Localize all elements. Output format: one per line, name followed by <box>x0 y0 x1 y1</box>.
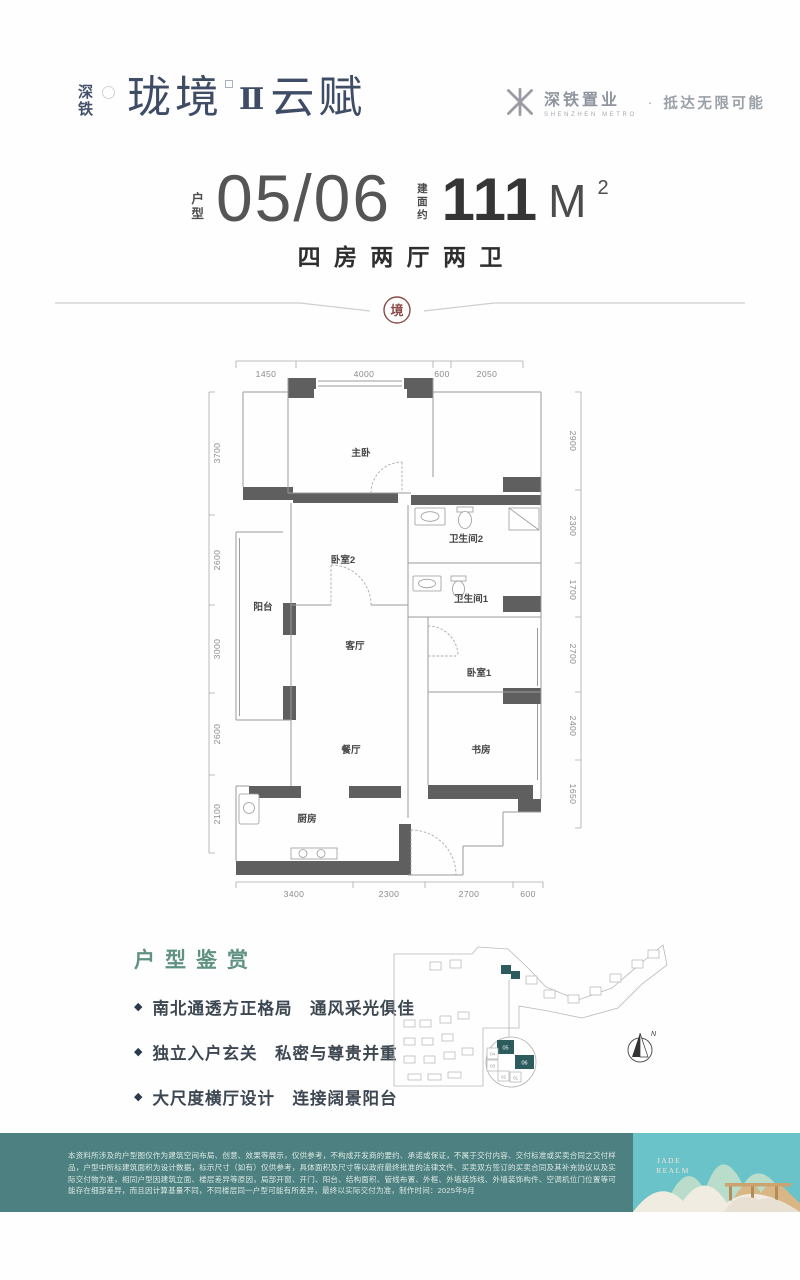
footer-band: 本资料所涉及的户型图仅作为建筑空间布局、创意、效果等展示，仅供参考，不构成开发商… <box>0 1133 800 1212</box>
divider-line-left <box>55 303 370 311</box>
seal-character: 境 <box>390 303 403 318</box>
wall-segments <box>236 378 541 875</box>
art-title-line1: JADE <box>657 1156 681 1165</box>
unit-type-label: 户 型 <box>191 192 204 222</box>
project-logo: 深 铁 珑境 Ⅱ 云赋 <box>78 74 366 122</box>
feature-text: 大尺度横厅设计 连接阔景阳台 <box>152 1085 397 1109</box>
room-label-kitchen: 厨房 <box>297 813 317 825</box>
dim-label: 2300 <box>568 516 578 537</box>
dim-label: 2100 <box>212 804 222 825</box>
developer-name-block: 深铁置业 SHENZHEN METRO <box>544 86 637 118</box>
compass-icon: N <box>628 1031 657 1062</box>
unit-number: 05/06 <box>216 166 391 230</box>
developer-name: 深铁置业 <box>544 86 637 110</box>
compass-north-label: N <box>651 1031 657 1038</box>
mountain-art-icon: JADE REALM <box>633 1133 800 1212</box>
area-number: 111 <box>442 170 539 230</box>
dim-label: 1650 <box>568 784 578 805</box>
toilet-icon <box>451 576 466 581</box>
dim-label: 2900 <box>568 431 578 452</box>
room-label-bedroom1: 卧室1 <box>467 667 492 679</box>
decorative-divider: 境 <box>0 294 800 334</box>
dim-label: 3400 <box>284 889 305 899</box>
separator-dot: · <box>648 94 653 110</box>
developer-slogan: 抵达无限可能 <box>663 92 765 113</box>
unit-label-05: 05 <box>502 1046 508 1052</box>
fixtures <box>239 507 539 859</box>
floor-plan: 1450 4000 600 2050 3400 2300 2700 600 37… <box>203 356 603 904</box>
feature-text: 独立入户玄关 私密与尊贵并重 <box>152 1040 397 1064</box>
dimension-labels: 1450 4000 600 2050 3400 2300 2700 600 37… <box>212 369 578 899</box>
area-label-char: 约 <box>417 209 428 222</box>
layout-subtitle: 四房两厅两卫 <box>0 238 800 272</box>
logo-brand-stack: 深 铁 <box>78 84 94 118</box>
area-unit: M <box>548 172 586 230</box>
unit-label-01: 01 <box>513 1076 519 1081</box>
dim-label: 2050 <box>477 369 498 379</box>
area-label-char: 面 <box>417 196 428 209</box>
highlighted-towers <box>501 965 520 979</box>
diamond-bullet-icon: ◆ <box>134 1044 142 1060</box>
room-label-bath2: 卫生间2 <box>449 533 483 545</box>
unit-label-02: 02 <box>501 1075 507 1080</box>
unit-type-char: 户 <box>191 192 204 207</box>
area-label: 建 面 约 <box>417 183 428 222</box>
room-label-bath1: 卫生间1 <box>454 593 489 605</box>
stove-icon <box>291 848 337 859</box>
divider-line-right <box>424 303 745 311</box>
unit-label-06: 06 <box>521 1061 527 1067</box>
room-label-study: 书房 <box>471 744 491 756</box>
dim-label: 3700 <box>212 443 222 464</box>
art-title-line2: REALM <box>656 1166 690 1175</box>
unit-label-03: 03 <box>490 1064 496 1069</box>
partition-lines <box>236 378 541 875</box>
logo-suffix-text: 云赋 <box>270 74 366 122</box>
unit-label-04: 04 <box>490 1052 496 1057</box>
dim-label: 1450 <box>256 369 277 379</box>
logo-wordmark: 珑境 Ⅱ 云赋 <box>127 74 366 122</box>
logo-brand-char: 铁 <box>78 101 94 118</box>
dim-label: 2400 <box>568 716 578 737</box>
dim-label: 600 <box>434 369 450 379</box>
logo-trademark-icon <box>225 80 233 88</box>
footer-artwork: JADE REALM <box>633 1133 800 1212</box>
dim-label: 2700 <box>459 889 480 899</box>
room-label-balcony: 阳台 <box>253 601 273 613</box>
dim-label: 2600 <box>212 550 222 571</box>
area-superscript: 2 <box>597 177 608 200</box>
logo-brand-char: 深 <box>78 84 94 101</box>
diamond-bullet-icon: ◆ <box>134 999 142 1015</box>
master-window-gap <box>316 378 404 389</box>
diamond-bullet-icon: ◆ <box>134 1089 142 1105</box>
disclaimer-text: 本资料所涉及的户型图仅作为建筑空间布局、创意、效果等展示，仅供参考，不构成开发商… <box>68 1150 616 1197</box>
unit-title: 户 型 05/06 建 面 约 111 M 2 <box>0 166 800 230</box>
area-label-char: 建 <box>417 183 428 196</box>
unit-type-char: 型 <box>191 207 204 222</box>
dim-label: 2700 <box>568 644 578 665</box>
dim-label: 600 <box>520 889 536 899</box>
metro-logo-icon <box>505 87 535 117</box>
room-label-bedroom2: 卧室2 <box>331 554 356 566</box>
dim-label: 2300 <box>379 889 400 899</box>
logo-main-text: 珑境 <box>127 74 223 122</box>
developer-logo: 深铁置业 SHENZHEN METRO · 抵达无限可能 <box>505 86 765 118</box>
dim-label: 1700 <box>568 580 578 601</box>
logo-seal-icon <box>102 86 115 99</box>
dim-label: 4000 <box>354 369 375 379</box>
dim-label: 3000 <box>212 639 222 660</box>
site-plan: 05 06 04 03 02 01 N <box>382 932 672 1107</box>
dim-label: 2600 <box>212 724 222 745</box>
feature-text: 南北通透方正格局 通风采光俱佳 <box>152 995 415 1019</box>
room-label-dining: 餐厅 <box>340 744 361 756</box>
developer-name-en: SHENZHEN METRO <box>544 112 637 118</box>
logo-numeral: Ⅱ <box>239 78 264 122</box>
room-label-master: 主卧 <box>351 447 371 459</box>
room-label-living: 客厅 <box>344 640 365 652</box>
